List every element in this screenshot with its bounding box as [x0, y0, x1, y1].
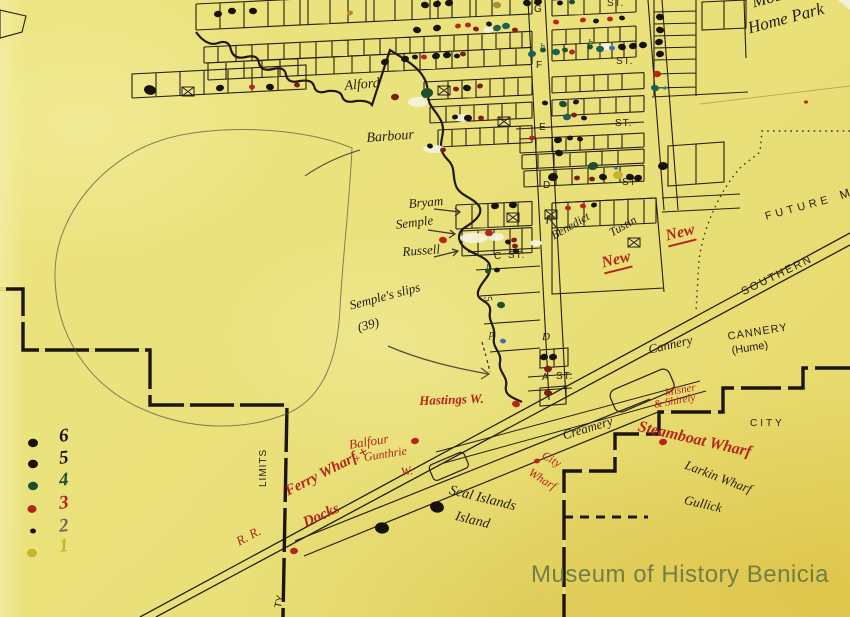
- map-label-creamery: Creamery: [561, 414, 614, 441]
- map-label-rr: R. R.: [234, 524, 263, 548]
- map-label-gullick: Gullick: [683, 493, 723, 514]
- legend-number-4: 4: [58, 470, 69, 490]
- street-label-ST: ST.: [556, 372, 573, 382]
- map-label-hastings-w: Hastings W.: [419, 392, 484, 407]
- street-label-ST: ST: [622, 178, 637, 188]
- map-label-city-wharf-2: Wharf: [527, 466, 559, 492]
- map-label-city-ty: TY: [274, 594, 286, 609]
- map-mark-p: p: [489, 330, 494, 340]
- street-label-ST: ST.: [607, 0, 624, 9]
- map-mark-5: 5: [481, 295, 493, 303]
- street-label-F: F: [536, 61, 543, 71]
- map-label-steamboat-wharf: Steamboat Wharf: [636, 419, 752, 461]
- street-label-ST: ST.: [615, 119, 632, 129]
- map-mark-b: b: [540, 43, 545, 53]
- street-label-G: G: [534, 5, 543, 15]
- map-label-city: CITY: [750, 419, 785, 429]
- map-labels: MobileHome ParkAlfordBarbourBryamSempleR…: [0, 0, 850, 617]
- map-label-slips-39: (39): [356, 315, 380, 333]
- street-label-ST: ST.: [616, 57, 633, 67]
- map-label-semples-slips: Semple's slips: [348, 280, 421, 311]
- map-label-future-m: M: [838, 187, 850, 202]
- map-label-barbour: Barbour: [366, 129, 414, 146]
- legend-number-1: 1: [58, 536, 69, 556]
- map-label-new-2: New: [664, 222, 696, 245]
- street-label-E: E: [539, 123, 547, 133]
- map-label-benedict: Benedict: [549, 210, 591, 241]
- map-label-larkin-wharf: Larkin Wharf: [683, 458, 753, 495]
- watermark-text: Museum of History Benicia: [531, 561, 829, 589]
- map-label-southern: SOUTHERN: [740, 254, 815, 298]
- map-label-balfour-3: W.: [400, 464, 414, 478]
- map-label-ferry-wharf: Ferry Wharf +: [283, 445, 371, 500]
- paper-corner: [838, 0, 850, 10]
- map-label-docks: Docks: [301, 501, 342, 530]
- map-label-cannery-script: Cannery: [647, 333, 694, 356]
- map-label-cannery-hume: (Hume): [731, 340, 769, 357]
- map-mark-b: b: [486, 264, 491, 274]
- map-label-bryam: Bryam: [408, 194, 444, 210]
- legend-number-2: 2: [58, 516, 69, 536]
- legend-number-3: 3: [58, 493, 69, 513]
- map-label-future: FUTURE: [764, 194, 833, 222]
- legend-number-5: 5: [58, 448, 69, 468]
- legend-number-6: 6: [58, 426, 69, 446]
- map-label-new-1: New: [600, 249, 632, 272]
- map-mark-b: b: [588, 39, 593, 49]
- street-label-D: D: [543, 181, 551, 191]
- map-label-alford: Alford: [344, 77, 380, 94]
- map-label-semple: Semple: [395, 213, 434, 230]
- map-label-tustin: Tustin: [607, 213, 638, 238]
- street-label-ST: ST.: [508, 251, 525, 261]
- map-image: MobileHome ParkAlfordBarbourBryamSempleR…: [0, 0, 850, 617]
- street-label-A: A: [542, 373, 550, 383]
- map-label-seal-islands-2: Island: [454, 510, 491, 532]
- map-label-city-limits: LIMITS: [259, 449, 269, 487]
- map-label-misner-2: & Shirely: [653, 393, 696, 411]
- map-mark-D: D: [542, 332, 550, 343]
- street-label-C: C: [494, 252, 502, 262]
- map-label-city-wharf-1: City: [540, 449, 563, 469]
- map-label-russell: Russell: [402, 242, 440, 258]
